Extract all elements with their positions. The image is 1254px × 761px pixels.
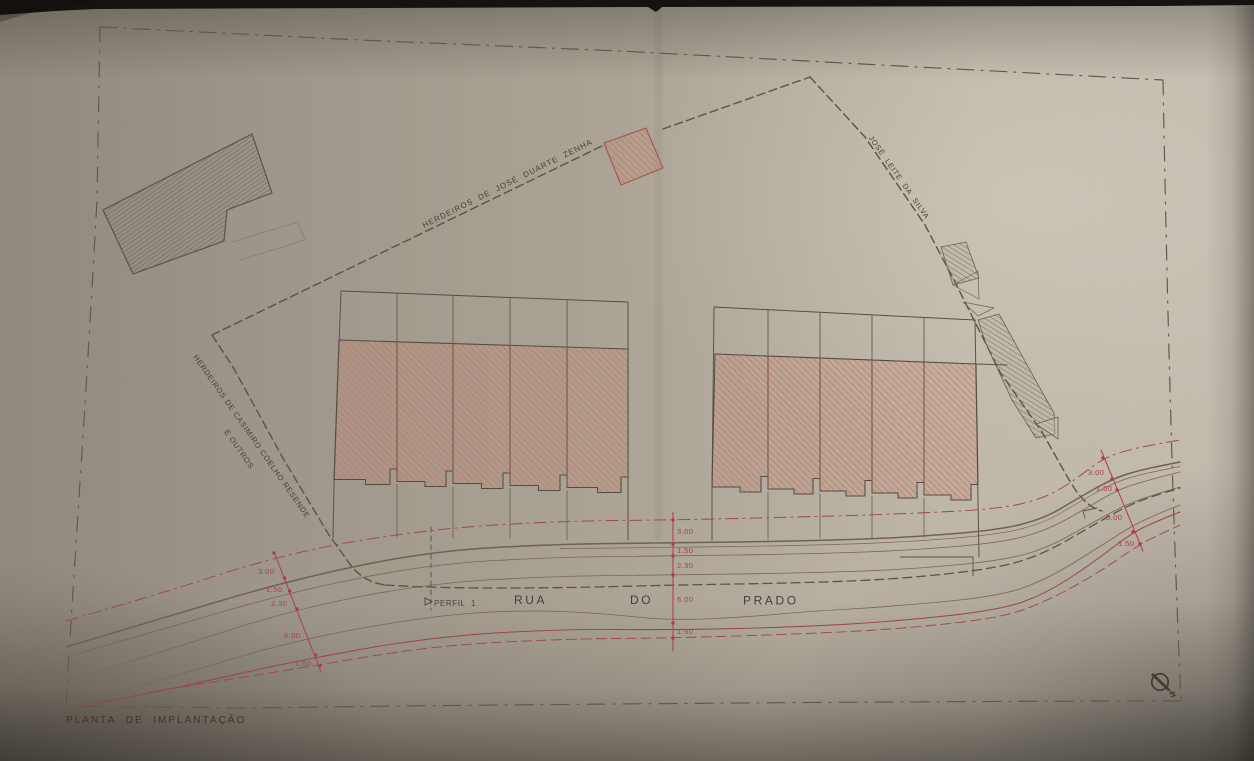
svg-text:1.50: 1.50 [677, 546, 693, 555]
svg-text:3.00: 3.00 [677, 527, 693, 536]
svg-text:1.50: 1.50 [295, 659, 311, 668]
svg-text:6.00: 6.00 [284, 631, 300, 640]
svg-text:1.50: 1.50 [1096, 484, 1112, 493]
svg-text:1.50: 1.50 [266, 585, 282, 594]
svg-text:1.50: 1.50 [1118, 539, 1134, 548]
svg-text:RUA: RUA [514, 593, 547, 607]
svg-text:2.30: 2.30 [271, 599, 287, 608]
svg-text:1.50: 1.50 [677, 627, 693, 636]
svg-text:3.00: 3.00 [258, 567, 274, 576]
svg-text:PERFIL 1: PERFIL 1 [434, 599, 476, 608]
svg-text:6.00: 6.00 [1106, 513, 1122, 522]
svg-text:2.30: 2.30 [677, 561, 693, 570]
svg-text:3.00: 3.00 [1088, 468, 1104, 477]
svg-text:PLANTA DE IMPLANTAÇÃO: PLANTA DE IMPLANTAÇÃO [66, 713, 246, 726]
svg-text:DO: DO [630, 593, 653, 607]
svg-text:PRADO: PRADO [743, 594, 799, 608]
svg-text:6.00: 6.00 [677, 595, 693, 604]
